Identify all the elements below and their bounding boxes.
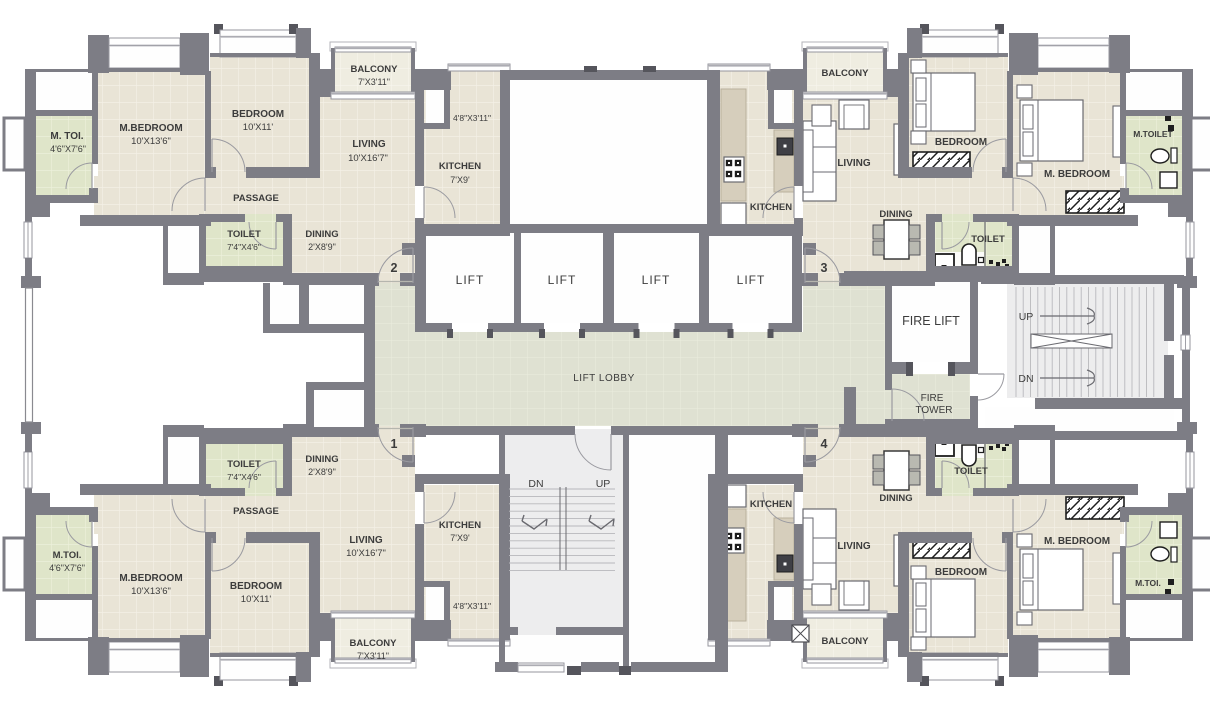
- svg-text:BALCONY: BALCONY: [350, 638, 398, 649]
- svg-text:10'X13'6": 10'X13'6": [131, 586, 171, 597]
- svg-text:7'X3'11": 7'X3'11": [357, 651, 389, 661]
- svg-text:M. BEDROOM: M. BEDROOM: [1044, 169, 1110, 180]
- svg-text:TOILET: TOILET: [227, 229, 261, 240]
- svg-text:BALCONY: BALCONY: [351, 64, 399, 75]
- svg-text:LIVING: LIVING: [837, 158, 871, 169]
- svg-text:10'X11': 10'X11': [243, 122, 274, 133]
- svg-text:10'X16'7": 10'X16'7": [348, 153, 388, 164]
- svg-text:KITCHEN: KITCHEN: [750, 499, 792, 510]
- svg-text:BEDROOM: BEDROOM: [232, 109, 284, 120]
- svg-text:TOILET: TOILET: [971, 234, 1005, 245]
- svg-text:3: 3: [821, 261, 828, 275]
- svg-text:DINING: DINING: [305, 229, 338, 240]
- svg-text:DINING: DINING: [879, 209, 912, 220]
- svg-text:4'8"X3'11": 4'8"X3'11": [453, 601, 491, 611]
- svg-text:LIVING: LIVING: [352, 139, 386, 150]
- svg-text:BEDROOM: BEDROOM: [230, 581, 282, 592]
- svg-text:2: 2: [391, 261, 398, 275]
- svg-text:2'X8'9": 2'X8'9": [308, 467, 336, 477]
- svg-text:M.BEDROOM: M.BEDROOM: [119, 123, 182, 134]
- svg-text:M.BEDROOM: M.BEDROOM: [119, 573, 182, 584]
- svg-text:UP: UP: [1019, 311, 1034, 323]
- svg-text:LIFT: LIFT: [456, 273, 485, 287]
- svg-text:4'6"X7'6": 4'6"X7'6": [49, 563, 85, 573]
- svg-text:TOILET: TOILET: [954, 466, 988, 477]
- svg-text:KITCHEN: KITCHEN: [439, 161, 481, 172]
- svg-text:UP: UP: [596, 478, 611, 490]
- svg-text:1: 1: [391, 437, 398, 451]
- svg-text:KITCHEN: KITCHEN: [439, 520, 481, 531]
- svg-text:PASSAGE: PASSAGE: [233, 506, 279, 517]
- svg-text:LIVING: LIVING: [349, 535, 383, 546]
- svg-text:FIRE: FIRE: [921, 393, 944, 404]
- svg-text:10'X11': 10'X11': [241, 594, 272, 605]
- svg-text:LIVING: LIVING: [837, 541, 871, 552]
- svg-text:LIFT LOBBY: LIFT LOBBY: [573, 373, 635, 384]
- svg-text:7'X9': 7'X9': [450, 175, 470, 185]
- svg-text:BALCONY: BALCONY: [822, 636, 870, 647]
- svg-text:7'4"X4'6": 7'4"X4'6": [227, 472, 261, 482]
- svg-text:LIFT: LIFT: [737, 273, 766, 287]
- svg-text:BEDROOM: BEDROOM: [935, 567, 987, 578]
- svg-text:7'4"X4'6": 7'4"X4'6": [227, 242, 261, 252]
- svg-text:4'6"X7'6": 4'6"X7'6": [50, 144, 86, 154]
- svg-text:2'X8'9": 2'X8'9": [308, 242, 336, 252]
- svg-text:BALCONY: BALCONY: [822, 68, 870, 79]
- svg-text:DN: DN: [528, 478, 543, 490]
- svg-text:DINING: DINING: [879, 493, 912, 504]
- svg-text:KITCHEN: KITCHEN: [750, 202, 792, 213]
- svg-text:PASSAGE: PASSAGE: [233, 193, 279, 204]
- svg-text:7'X3'11": 7'X3'11": [358, 77, 390, 87]
- svg-text:BEDROOM: BEDROOM: [935, 137, 987, 148]
- svg-text:M. TOI.: M. TOI.: [50, 131, 83, 142]
- svg-text:M.TOI.: M.TOI.: [1135, 578, 1161, 588]
- svg-text:TOWER: TOWER: [915, 405, 952, 416]
- svg-text:DN: DN: [1018, 373, 1033, 385]
- svg-text:TOILET: TOILET: [227, 459, 261, 470]
- svg-text:M.TOI.: M.TOI.: [53, 550, 82, 561]
- svg-text:10'X13'6": 10'X13'6": [131, 136, 171, 147]
- svg-text:M.TOILET: M.TOILET: [1133, 129, 1173, 139]
- svg-text:FIRE LIFT: FIRE LIFT: [902, 314, 960, 328]
- svg-text:DINING: DINING: [305, 454, 338, 465]
- svg-text:4: 4: [821, 437, 828, 451]
- svg-text:LIFT: LIFT: [548, 273, 577, 287]
- svg-text:10'X16'7": 10'X16'7": [346, 548, 386, 559]
- svg-text:M. BEDROOM: M. BEDROOM: [1044, 536, 1110, 547]
- svg-text:7'X9': 7'X9': [450, 533, 470, 543]
- svg-text:LIFT: LIFT: [642, 273, 671, 287]
- svg-text:4'8"X3'11": 4'8"X3'11": [453, 113, 491, 123]
